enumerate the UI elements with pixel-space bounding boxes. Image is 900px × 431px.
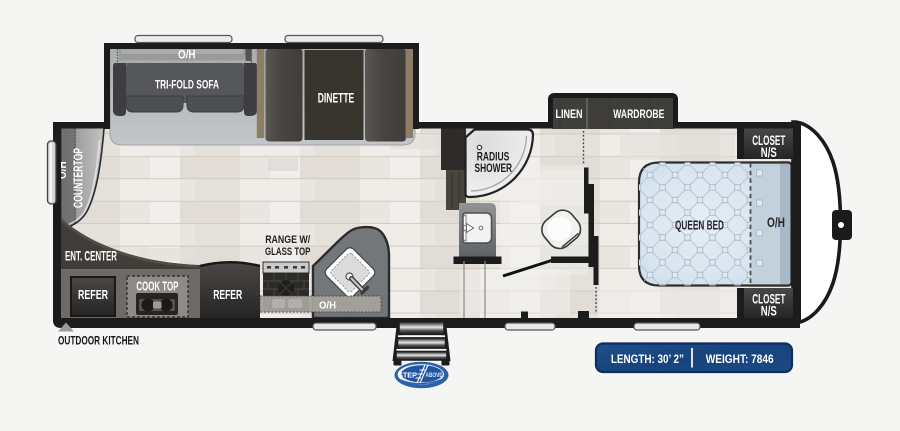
svg-text:COOK TOP: COOK TOP bbox=[136, 279, 178, 294]
svg-text:RANGE W/: RANGE W/ bbox=[265, 234, 310, 246]
svg-text:WARDROBE: WARDROBE bbox=[613, 107, 664, 121]
svg-text:LENGTH: 30’ 2”: LENGTH: 30’ 2” bbox=[611, 352, 684, 366]
svg-text:LINEN: LINEN bbox=[556, 107, 583, 121]
svg-text:TRI-FOLD SOFA: TRI-FOLD SOFA bbox=[155, 77, 219, 91]
svg-text:O/H: O/H bbox=[319, 300, 336, 312]
svg-text:REFER: REFER bbox=[78, 287, 108, 302]
svg-text:O/H: O/H bbox=[767, 215, 785, 230]
svg-text:O/H: O/H bbox=[178, 47, 196, 61]
svg-text:N/S: N/S bbox=[761, 304, 777, 319]
svg-text:DINETTE: DINETTE bbox=[318, 90, 355, 105]
svg-text:N/S: N/S bbox=[761, 145, 777, 160]
svg-text:ENT. CENTER: ENT. CENTER bbox=[65, 248, 117, 264]
svg-text:OUTDOOR KITCHEN: OUTDOOR KITCHEN bbox=[58, 333, 139, 347]
svg-text:COUNTERTOP: COUNTERTOP bbox=[70, 148, 85, 208]
svg-text:STEP: STEP bbox=[398, 371, 417, 380]
svg-text:WEIGHT: 7846: WEIGHT: 7846 bbox=[706, 352, 774, 366]
svg-text:QUEEN BED: QUEEN BED bbox=[675, 218, 724, 233]
svg-text:GLASS TOP: GLASS TOP bbox=[265, 246, 311, 258]
svg-text:ABOVE: ABOVE bbox=[426, 372, 443, 379]
svg-text:SHOWER: SHOWER bbox=[475, 161, 513, 175]
svg-text:REFER: REFER bbox=[213, 287, 242, 302]
